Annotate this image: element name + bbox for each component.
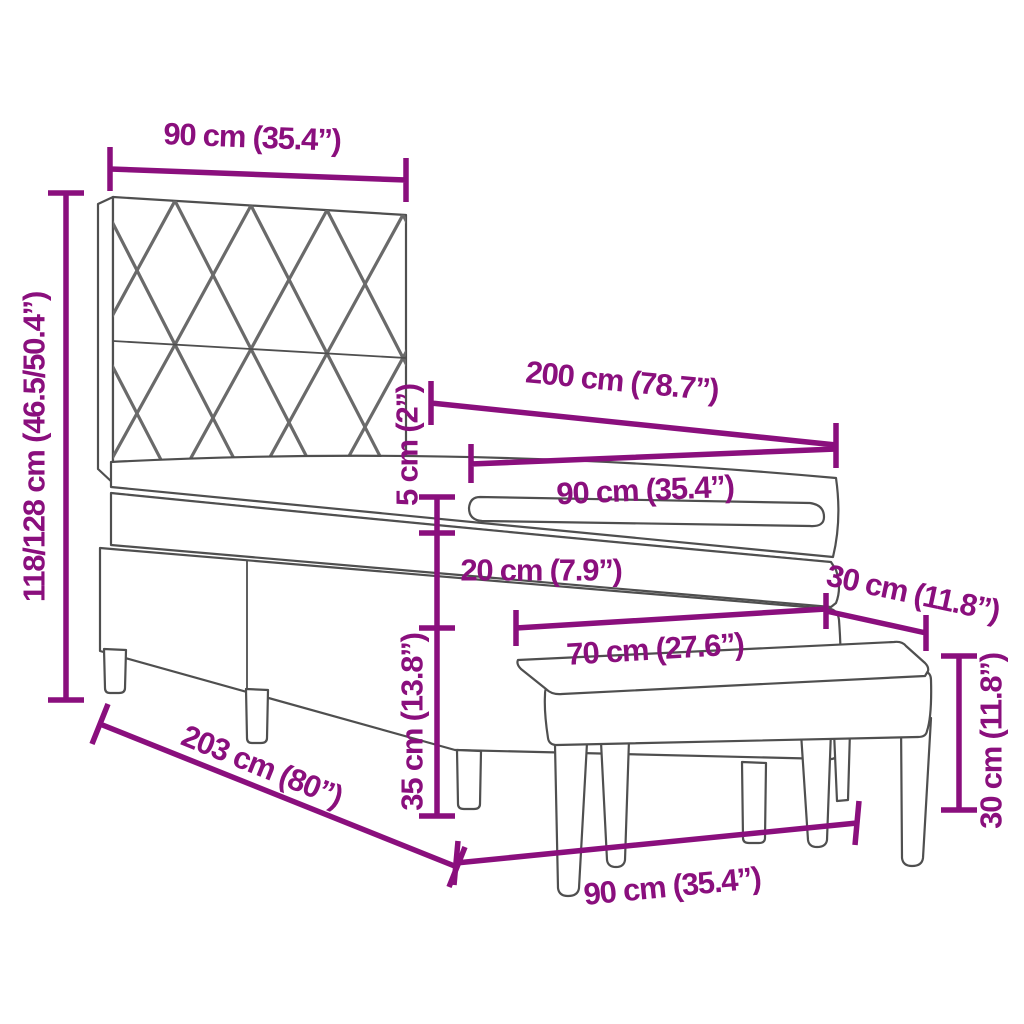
furniture-dimension-diagram: 90 cm (35.4”) 118/128 cm (46.5/50.4”) 20… xyxy=(0,0,1024,1024)
dimension-headboard-height: 118/128 cm (46.5/50.4”) xyxy=(17,193,85,700)
bench-leg-right-inner xyxy=(834,731,850,801)
headboard-side xyxy=(98,197,113,483)
bench xyxy=(517,642,931,896)
dim-label-bed-width: 90 cm (35.4”) xyxy=(582,860,762,912)
dim-label-headboard-height: 118/128 cm (46.5/50.4”) xyxy=(17,292,52,602)
diagram-svg: 90 cm (35.4”) 118/128 cm (46.5/50.4”) 20… xyxy=(0,0,1024,1024)
bed-leg xyxy=(104,649,126,693)
dimension-bed-width: 90 cm (35.4”) xyxy=(454,801,859,912)
bed-leg xyxy=(457,750,481,809)
bench-leg-right-front xyxy=(901,718,931,866)
dimension-bench-depth: 30 cm (11.8”) xyxy=(823,558,1002,651)
dim-label-topper-thickness: 5 cm (2”) xyxy=(390,384,425,506)
dim-label-mattress-thickness: 20 cm (7.9”) xyxy=(460,553,621,588)
dimension-headboard-width: 90 cm (35.4”) xyxy=(110,116,406,202)
dim-label-mattress-length: 200 cm (78.7”) xyxy=(524,354,720,407)
dim-label-base-height: 35 cm (13.8”) xyxy=(395,633,430,810)
bench-leg-left-front xyxy=(555,743,587,896)
dim-label-bench-height: 30 cm (11.8”) xyxy=(974,653,1009,829)
bed-leg xyxy=(246,689,268,743)
dim-label-headboard-width: 90 cm (35.4”) xyxy=(163,116,342,158)
dimension-bench-height: 30 cm (11.8”) xyxy=(941,653,1009,829)
